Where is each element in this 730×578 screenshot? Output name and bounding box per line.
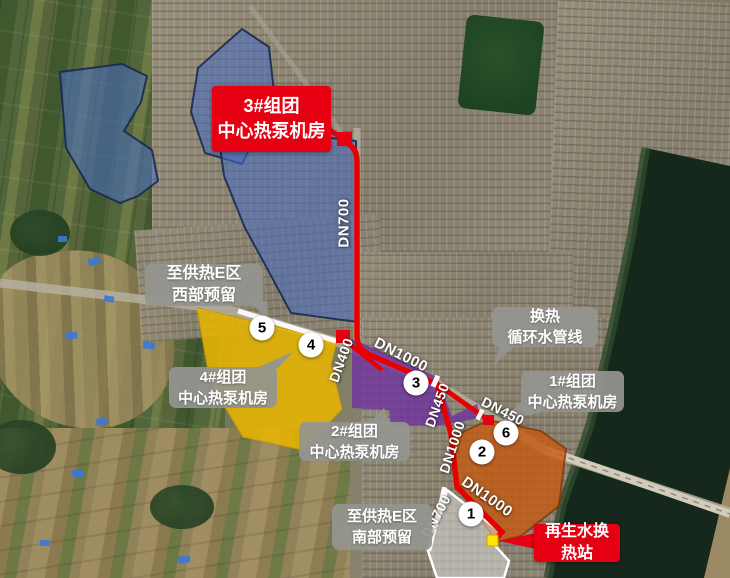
callout-line: 西部预留 [172, 285, 236, 307]
callout-line: 南部预留 [352, 527, 412, 548]
marker-circle-3: 3 [404, 371, 429, 396]
marker-circle-1: 1 [459, 502, 484, 527]
callout-line: 2#组团 [331, 421, 378, 442]
node-reclaimed-water-station [487, 535, 498, 546]
callout-cluster1-pump-room: 1#组团 中心热泵机房 [521, 371, 624, 412]
pipe-label-dn700-north: DN700 [336, 198, 353, 247]
marker-circle-5: 5 [250, 316, 275, 341]
callout-south-reserve: 至供热E区 南部预留 [332, 504, 432, 550]
callout-cluster2-pump-room: 2#组团 中心热泵机房 [299, 422, 410, 461]
callout-line: 中心热泵机房 [178, 388, 268, 409]
callout-line: 1#组团 [549, 371, 596, 392]
callout-line: 3#组团 [243, 94, 299, 119]
map-overlay [0, 0, 730, 578]
callout-line: 中心热泵机房 [527, 392, 617, 413]
callout-line: 至供热E区 [167, 263, 242, 285]
callout-line: 4#组团 [200, 367, 247, 388]
callout-line: 中心热泵机房 [309, 442, 399, 463]
node-cluster3-pump [337, 132, 352, 146]
callout-west-reserve: 至供热E区 西部预留 [145, 264, 263, 306]
callout-line: 热站 [561, 543, 593, 565]
node-cluster1-pump [483, 415, 494, 425]
callout-heat-exchange-pipeline: 换热 循环水管线 [492, 307, 598, 347]
callout-line: 中心热泵机房 [218, 119, 326, 144]
marker-circle-4: 4 [299, 333, 324, 358]
callout-line: 至供热E区 [347, 506, 417, 527]
callout-line: 再生水换 [545, 521, 609, 543]
marker-circle-6: 6 [494, 421, 519, 446]
marker-circle-2: 2 [470, 440, 495, 465]
zone-blue-west [60, 64, 158, 203]
callout-line: 循环水管线 [507, 327, 582, 348]
callout-reclaimed-water-station: 再生水换 热站 [534, 524, 620, 562]
heating-network-map: DN700 DN1000 DN400 DN450 DN450 DN1000 DN… [0, 0, 730, 578]
callout-line: 换热 [530, 306, 560, 327]
callout-cluster3-pump-room: 3#组团 中心热泵机房 [212, 86, 331, 152]
callout-cluster4-pump-room: 4#组团 中心热泵机房 [169, 367, 277, 408]
